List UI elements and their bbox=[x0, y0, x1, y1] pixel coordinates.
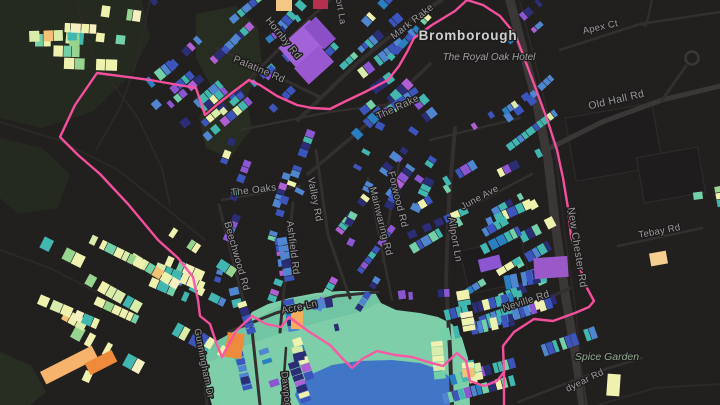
building bbox=[150, 0, 159, 6]
building bbox=[84, 274, 97, 288]
building bbox=[89, 24, 96, 34]
building bbox=[105, 59, 117, 71]
building bbox=[534, 0, 542, 8]
map-svg[interactable]: BromboroughThe Royal Oak HotelApex CtOld… bbox=[0, 0, 720, 405]
building bbox=[398, 290, 407, 300]
building bbox=[432, 355, 444, 362]
pale-building-tebay bbox=[649, 251, 668, 267]
building bbox=[422, 222, 433, 232]
building bbox=[236, 174, 246, 184]
map-canvas[interactable]: BromboroughThe Royal Oak HotelApex CtOld… bbox=[0, 0, 720, 405]
building bbox=[145, 76, 156, 88]
map-label-ort-la: ort La bbox=[333, 0, 348, 26]
building bbox=[414, 174, 424, 184]
building bbox=[37, 294, 50, 307]
building bbox=[168, 227, 178, 238]
building bbox=[438, 289, 444, 297]
map-label-the-royal-oak-hotel: The Royal Oak Hotel bbox=[443, 52, 537, 63]
map-label-bromborough: Bromborough bbox=[419, 28, 518, 43]
building bbox=[295, 0, 307, 11]
map-label-apex-ct: Apex Ct bbox=[582, 18, 620, 37]
crimson-building bbox=[313, 0, 328, 9]
building bbox=[399, 147, 408, 156]
building bbox=[444, 289, 450, 297]
building bbox=[43, 30, 53, 41]
building bbox=[229, 287, 240, 297]
building bbox=[166, 100, 174, 109]
building bbox=[517, 193, 524, 201]
building bbox=[281, 172, 290, 181]
building bbox=[181, 291, 190, 302]
building bbox=[353, 163, 362, 171]
building bbox=[431, 346, 443, 355]
woodland-area bbox=[0, 138, 70, 214]
building bbox=[70, 23, 81, 33]
building bbox=[294, 187, 305, 196]
building bbox=[101, 5, 111, 17]
building bbox=[72, 46, 80, 57]
pale-building-spice bbox=[606, 374, 621, 397]
building bbox=[361, 148, 370, 156]
building bbox=[63, 46, 71, 57]
woodland-area bbox=[0, 352, 46, 405]
building bbox=[487, 111, 495, 119]
map-label-beechwood-rd: Beechwood Rd bbox=[221, 220, 251, 292]
building bbox=[408, 126, 419, 136]
building bbox=[456, 289, 470, 301]
building bbox=[84, 332, 96, 347]
building bbox=[269, 103, 279, 113]
building bbox=[132, 10, 142, 22]
map-label-the-oaks: The Oaks bbox=[230, 182, 277, 198]
building bbox=[96, 59, 105, 71]
building bbox=[716, 199, 720, 207]
building bbox=[64, 58, 75, 70]
building bbox=[39, 236, 54, 252]
building bbox=[53, 30, 63, 41]
building bbox=[434, 371, 446, 380]
building bbox=[179, 117, 191, 129]
building bbox=[346, 237, 355, 246]
peach-building-top bbox=[276, 0, 292, 11]
building bbox=[407, 229, 418, 239]
building bbox=[693, 191, 703, 199]
roundabout bbox=[686, 52, 699, 65]
building bbox=[75, 58, 85, 70]
purple-block-east bbox=[533, 256, 568, 279]
building bbox=[29, 31, 40, 42]
building bbox=[508, 375, 516, 387]
building bbox=[275, 209, 285, 218]
building bbox=[273, 278, 283, 287]
building bbox=[115, 35, 125, 45]
building bbox=[375, 121, 386, 131]
building bbox=[81, 24, 89, 34]
building bbox=[64, 23, 70, 33]
building bbox=[53, 45, 63, 56]
building bbox=[434, 217, 445, 227]
building bbox=[89, 235, 99, 246]
building bbox=[715, 192, 720, 199]
building bbox=[151, 99, 162, 110]
building bbox=[534, 21, 543, 30]
map-label-spice-garden: Spice Garden bbox=[575, 351, 639, 363]
building bbox=[214, 276, 221, 283]
building bbox=[96, 33, 105, 43]
building bbox=[408, 292, 413, 300]
building bbox=[714, 186, 720, 193]
building bbox=[324, 297, 333, 308]
building bbox=[317, 298, 325, 309]
